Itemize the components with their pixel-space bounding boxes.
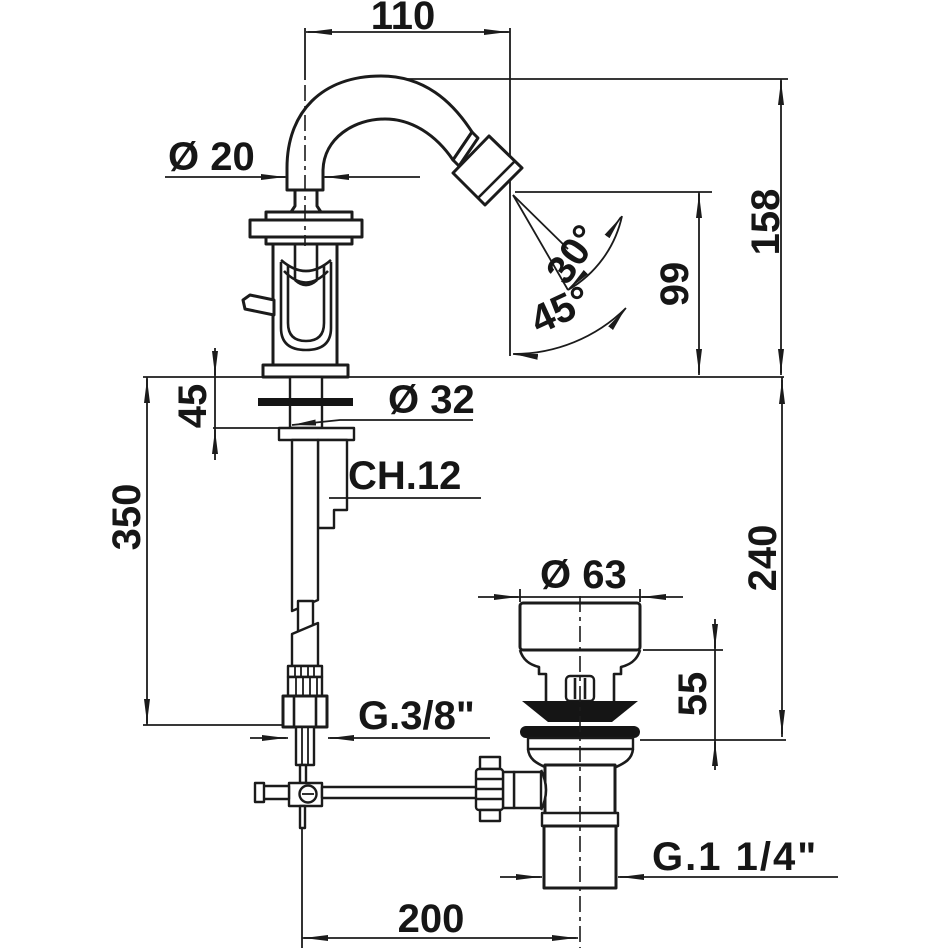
angle-max-label: 45° (524, 277, 597, 342)
popup-rod-lower (300, 806, 305, 828)
dim-hose-length-label: 350 (105, 484, 149, 551)
dim-waste-cap-diameter-label: Ø 63 (540, 553, 627, 597)
side-port-collar (503, 772, 514, 808)
waste-assembly (476, 603, 640, 888)
dim-depth-label: 240 (741, 525, 785, 592)
side-port-cylinder (514, 772, 541, 808)
hose-hex-nut (283, 696, 327, 727)
handle-neck (291, 190, 321, 212)
dim-waste-height-label: 55 (671, 672, 715, 717)
installation-parts (255, 377, 478, 828)
dim-centre-distance-label: 200 (398, 897, 465, 941)
dim-spout-reach-label: 110 (371, 0, 436, 38)
dim-spout-diameter-label: Ø 20 (168, 135, 255, 179)
mounting-washer (279, 428, 354, 440)
knurl-cap-top (480, 757, 500, 769)
base-flange (263, 365, 348, 377)
linkage-pin-cap (255, 783, 264, 802)
cross-handle-bar (250, 220, 362, 237)
popup-lever (243, 295, 274, 315)
technical-drawing: 110 Ø 20 158 99 30° 45° 45 Ø 32 CH.12 35… (0, 0, 950, 950)
popup-rod-guide (318, 440, 347, 528)
dim-clamp-length-label: 45 (171, 384, 215, 429)
dim-outlet-height-label: 99 (653, 262, 697, 307)
supply-hose-upper (292, 440, 318, 611)
hose-ferrule (288, 666, 322, 677)
mounting-nut (258, 398, 353, 406)
waste-thread-label: G.1 1/4" (652, 835, 818, 879)
spout (287, 76, 472, 190)
popup-rod-upper (300, 765, 306, 783)
knurl-cap-bottom (480, 810, 500, 821)
supply-nipple (296, 727, 314, 765)
drawing-canvas: 110 Ø 20 158 99 30° 45° 45 Ø 32 CH.12 35… (0, 0, 950, 950)
horizontal-rod (322, 787, 478, 798)
dim-height-label: 158 (744, 189, 788, 256)
supply-hose-lower (292, 623, 318, 666)
dim-hole-diameter-label: Ø 32 (388, 378, 475, 422)
supply-thread-label: G.3/8" (358, 694, 475, 738)
wrench-size-label: CH.12 (348, 454, 461, 498)
mixer-faucet (243, 76, 522, 377)
